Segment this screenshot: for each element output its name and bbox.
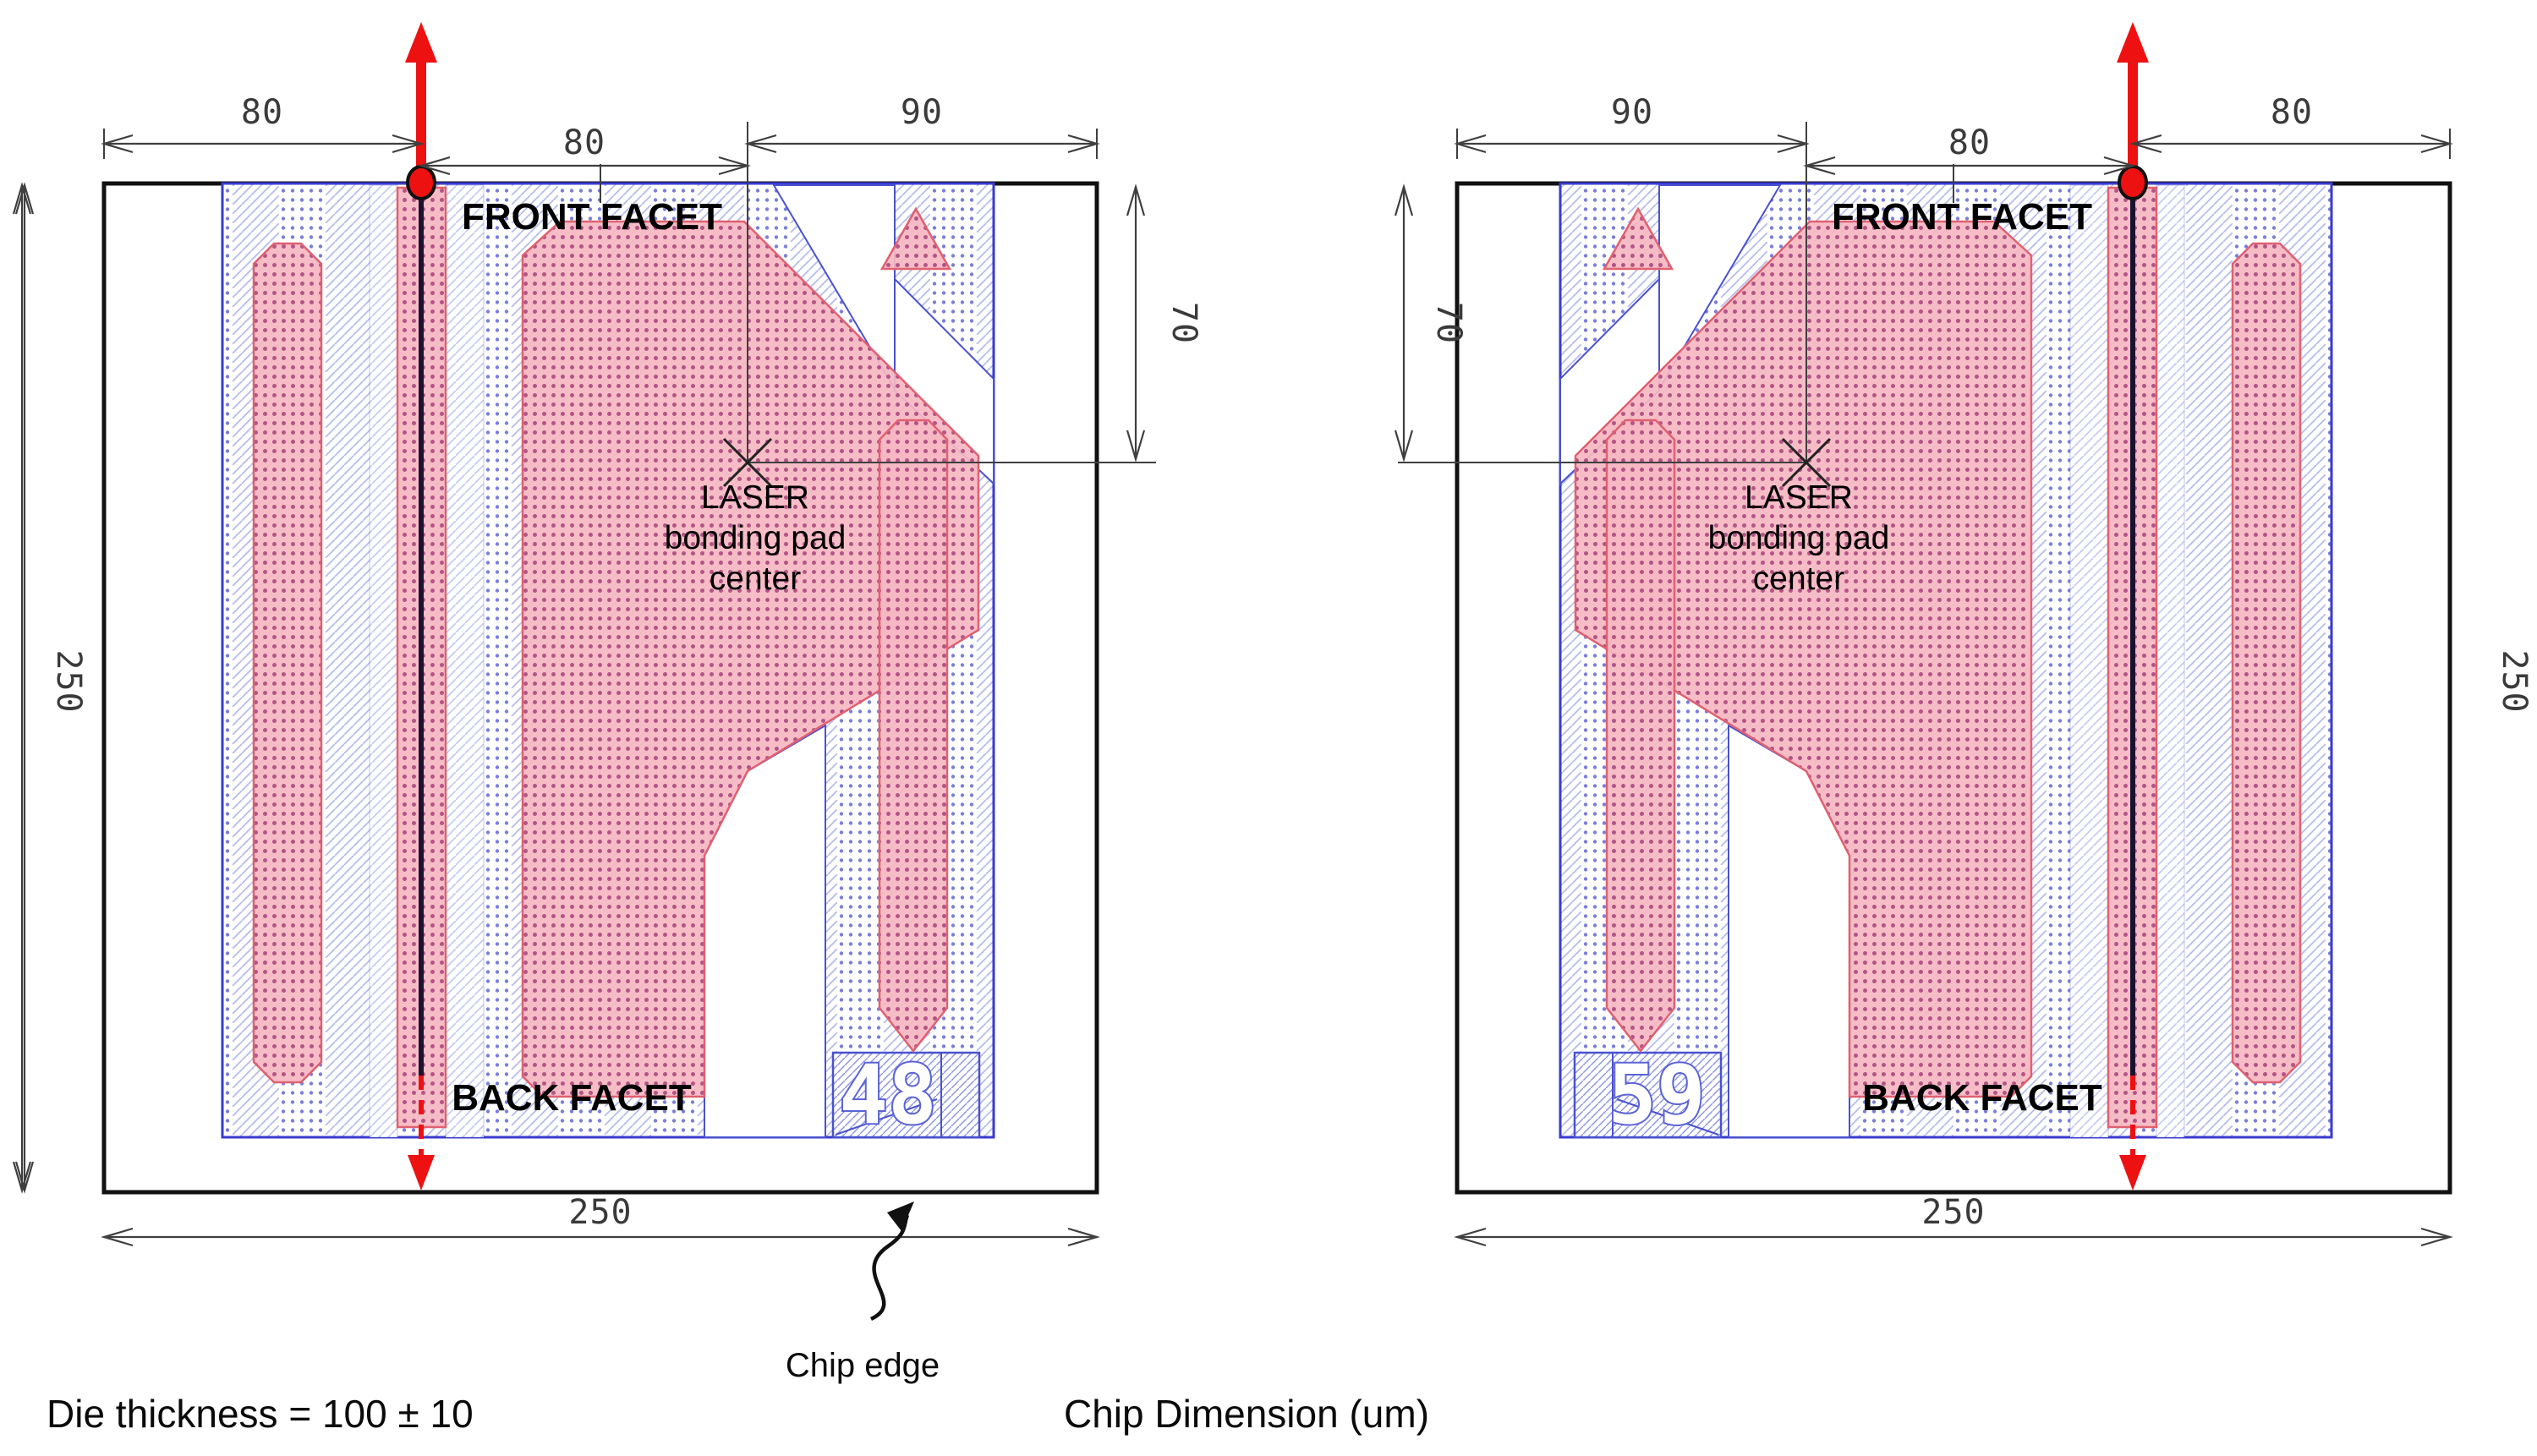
front-facet-point-marker xyxy=(2119,167,2146,199)
left-electrode-bar xyxy=(254,244,321,1082)
die-thickness-label: Die thickness = 100 ± 10 xyxy=(47,1392,474,1436)
chip-edge-arrowhead-icon xyxy=(887,1201,914,1231)
chip-number-right-chip: 59 xyxy=(1608,1048,1706,1142)
pad-center-label-line3-left-chip: center xyxy=(710,561,801,597)
back-facet-label-left-chip: BACK FACET xyxy=(452,1077,692,1119)
chip-edge-arrow xyxy=(871,1215,907,1319)
dim-top-right-label-left-chip: 90 xyxy=(901,93,943,132)
dim-top-left-label-left-chip: 80 xyxy=(241,93,283,132)
isolation-strip xyxy=(370,185,397,1137)
dim-facet-offset-label-left-chip: 70 xyxy=(1164,302,1203,344)
laser-chip-dimension-drawing: 80 80 90 70 250 250 FRONT FACET BACK FAC… xyxy=(0,0,2537,1456)
left-electrode-bar xyxy=(2233,244,2300,1082)
pad-center-label-line1-right-chip: LASER xyxy=(1745,479,1853,516)
right-electrode-bar xyxy=(1607,420,1674,1051)
dim-top-middle-label-left-chip: 80 xyxy=(563,123,605,162)
front-emission-arrowhead-icon xyxy=(2117,22,2149,63)
right-electrode-bar xyxy=(879,420,947,1051)
isolation-strip xyxy=(2070,185,2108,1137)
chip-number-left-chip: 48 xyxy=(839,1048,937,1142)
front-emission-arrowhead-icon xyxy=(405,22,437,63)
front-facet-point-marker xyxy=(408,167,435,199)
pad-center-label-line2-left-chip: bonding pad xyxy=(665,520,847,556)
pad-center-label-line1-left-chip: LASER xyxy=(701,479,809,516)
front-facet-label-left-chip: FRONT FACET xyxy=(462,196,722,238)
dim-top-right-label-right-chip: 80 xyxy=(2271,93,2313,132)
dim-top-middle-label-right-chip: 80 xyxy=(1948,123,1991,162)
dim-width-label-right-chip: 250 xyxy=(1921,1193,1985,1232)
chip-edge-callout: Chip edge xyxy=(786,1201,940,1384)
chip-dimension-units-label: Chip Dimension (um) xyxy=(1064,1392,1429,1436)
isolation-strip xyxy=(2156,185,2184,1137)
dim-height-label-left-chip: 250 xyxy=(49,649,88,713)
dim-top-left-label-right-chip: 90 xyxy=(1611,93,1653,132)
dim-height-label-right-chip: 250 xyxy=(2495,649,2534,713)
pad-center-label-line3-right-chip: center xyxy=(1753,561,1844,597)
front-facet-label-right-chip: FRONT FACET xyxy=(1832,196,2092,238)
pad-center-label-line2-right-chip: bonding pad xyxy=(1708,520,1890,556)
chip-edge-label: Chip edge xyxy=(786,1347,940,1384)
dim-facet-offset-label-right-chip: 70 xyxy=(1429,302,1468,344)
back-facet-label-right-chip: BACK FACET xyxy=(1862,1077,2102,1119)
dim-width-label-left-chip: 250 xyxy=(568,1193,632,1232)
isolation-strip xyxy=(446,185,484,1137)
